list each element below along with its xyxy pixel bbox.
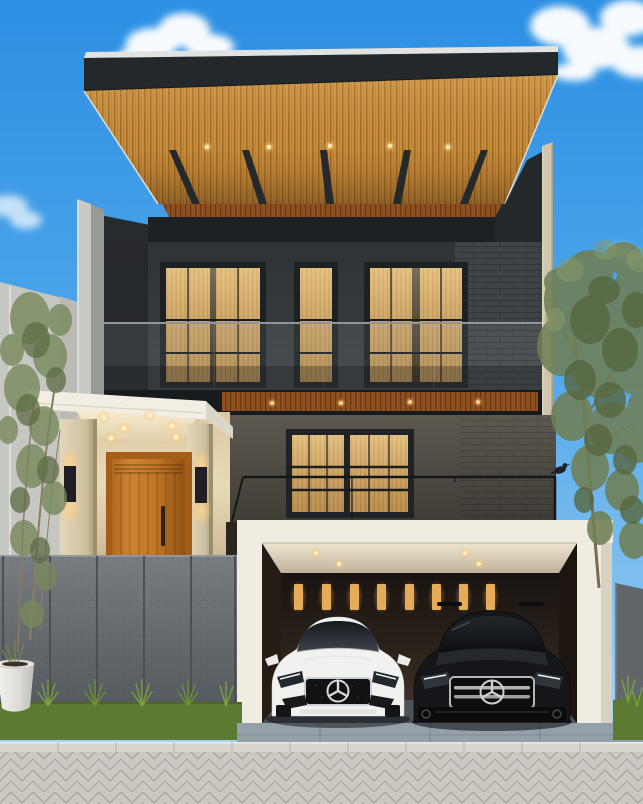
lawn-strip [0,702,242,740]
balcony-glass-railing [104,323,542,390]
rendered-photo [0,0,643,804]
black-car-wheel-right [549,707,566,721]
black-car-wheel-left [418,707,435,721]
roof-inner-wood-band [162,204,502,217]
white-car-wheel-left [276,705,291,717]
white-car-wheel-right [385,705,400,717]
black-car-roof-rail-left [437,602,462,606]
garage-jamb-right [577,543,605,723]
door-handle [161,506,165,546]
garage-header [237,520,613,543]
entry-door [106,452,192,557]
black-car-roof-rail-right [519,602,544,606]
roof-inner-fascia [148,217,495,243]
garage-jamb-left [237,543,262,723]
lower-floor [230,415,556,522]
parapet-left [77,199,104,420]
upper-floor [104,242,542,420]
lower-window [286,429,414,518]
